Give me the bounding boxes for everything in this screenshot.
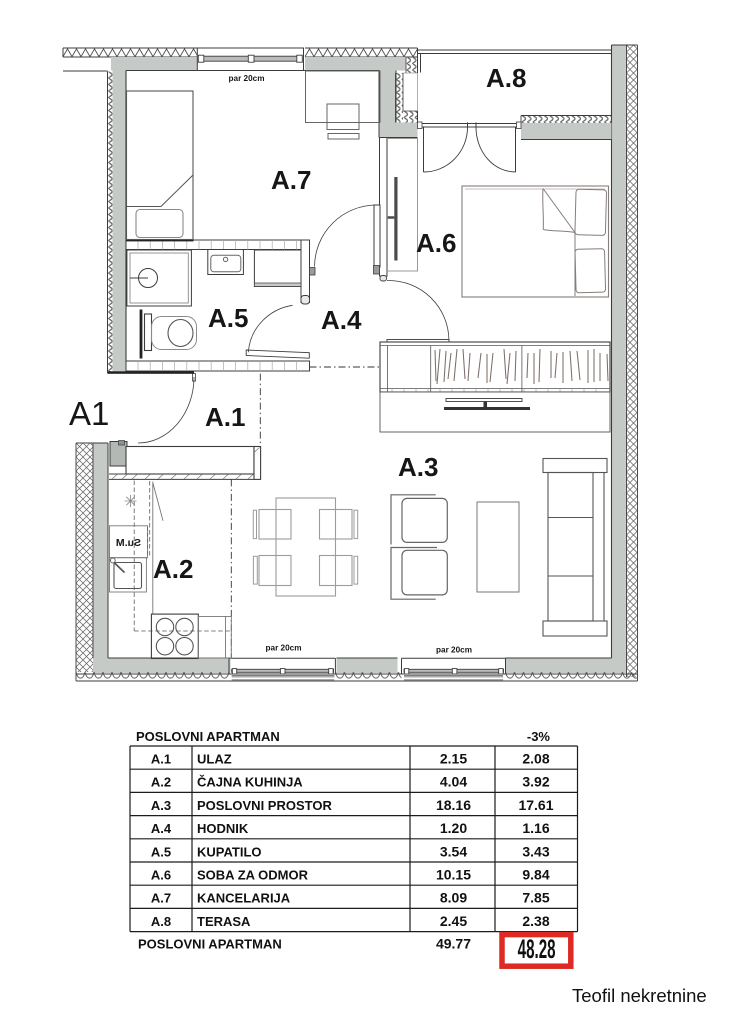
svg-text:7.85: 7.85 [522,890,549,906]
svg-text:-3%: -3% [527,729,551,744]
svg-text:Teofil nekretnine: Teofil nekretnine [572,985,707,1006]
svg-text:10.15: 10.15 [436,867,471,883]
svg-text:17.61: 17.61 [518,797,553,813]
svg-text:2.15: 2.15 [440,751,467,767]
svg-text:2.08: 2.08 [522,751,549,767]
svg-text:49.77: 49.77 [436,936,471,952]
svg-text:KANCELARIJA: KANCELARIJA [197,891,291,906]
svg-text:A.6: A.6 [416,228,456,258]
svg-text:A.4: A.4 [321,305,362,335]
svg-text:2.45: 2.45 [440,913,467,929]
svg-text:A.5: A.5 [208,303,248,333]
svg-text:A.6: A.6 [151,868,171,883]
svg-text:KUPATILO: KUPATILO [197,844,262,859]
svg-text:1.16: 1.16 [522,820,549,836]
svg-text:3.54: 3.54 [440,843,467,859]
svg-text:A.7: A.7 [271,165,311,195]
svg-text:TERASA: TERASA [197,914,251,929]
svg-text:ULAZ: ULAZ [197,752,232,767]
svg-text:A.8: A.8 [151,914,171,929]
svg-text:A.7: A.7 [151,891,171,906]
svg-text:A.1: A.1 [151,752,171,767]
svg-text:A.8: A.8 [486,63,526,93]
svg-text:A.3: A.3 [151,798,171,813]
svg-text:4.04: 4.04 [440,774,467,790]
svg-text:1.20: 1.20 [440,820,467,836]
svg-text:8.09: 8.09 [440,890,467,906]
svg-text:A.1: A.1 [205,402,245,432]
svg-text:SOBA ZA ODMOR: SOBA ZA ODMOR [197,868,309,883]
svg-text:POSLOVNI APARTMAN: POSLOVNI APARTMAN [138,937,282,952]
svg-text:A.5: A.5 [151,844,171,859]
svg-text:48.28: 48.28 [518,933,556,964]
svg-text:A.3: A.3 [398,452,438,482]
svg-text:A.2: A.2 [151,775,171,790]
svg-text:A.2: A.2 [153,554,193,584]
svg-text:ČAJNA KUHINJA: ČAJNA KUHINJA [197,775,303,790]
svg-text:9.84: 9.84 [522,867,549,883]
svg-text:HODNIK: HODNIK [197,821,249,836]
svg-text:par 20cm: par 20cm [436,646,472,655]
svg-text:POSLOVNI APARTMAN: POSLOVNI APARTMAN [136,729,280,744]
svg-text:3.92: 3.92 [522,774,549,790]
svg-text:Su.M: Su.M [116,537,141,549]
svg-text:3.43: 3.43 [522,843,549,859]
svg-text:A1: A1 [69,395,109,432]
svg-text:par 20cm: par 20cm [266,644,302,653]
svg-text:par 20cm: par 20cm [229,74,265,83]
svg-text:A.4: A.4 [151,821,172,836]
svg-text:18.16: 18.16 [436,797,471,813]
svg-text:POSLOVNI PROSTOR: POSLOVNI PROSTOR [197,798,332,813]
svg-text:2.38: 2.38 [522,913,549,929]
